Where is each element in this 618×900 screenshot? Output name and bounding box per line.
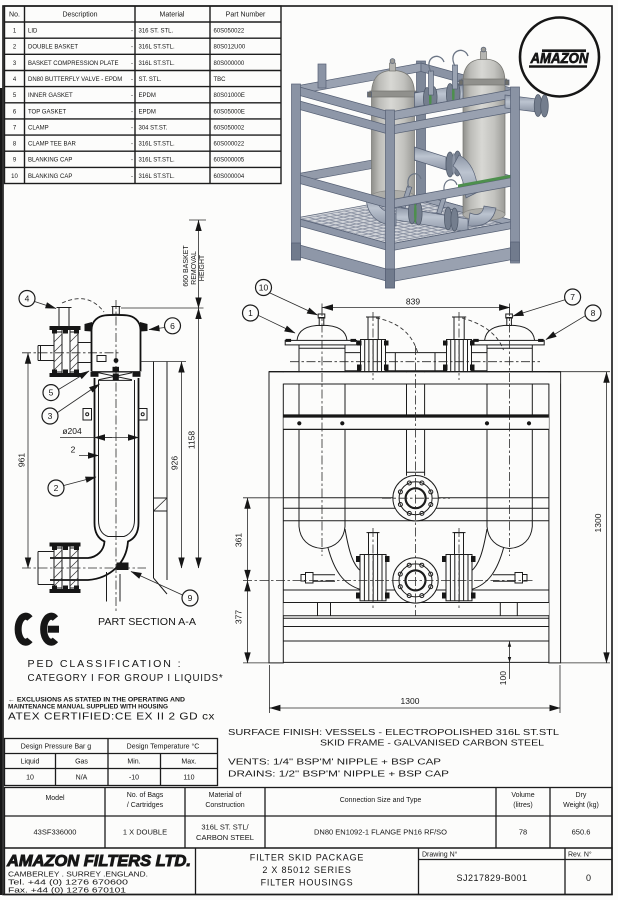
svg-text:2 X 85012 SERIES: 2 X 85012 SERIES: [262, 865, 351, 875]
svg-text:CLAMP: CLAMP: [28, 125, 49, 131]
svg-text:60S050002: 60S050002: [214, 125, 245, 131]
svg-text:Design Temperature °C: Design Temperature °C: [127, 743, 200, 751]
svg-text:650.6: 650.6: [572, 828, 591, 837]
svg-text:BLANKING CAP: BLANKING CAP: [28, 158, 72, 164]
svg-text:660 BASKET: 660 BASKET: [183, 245, 190, 287]
svg-text:Model: Model: [45, 795, 65, 802]
svg-text:BASKET COMPRESSION PLATE: BASKET COMPRESSION PLATE: [28, 61, 118, 67]
svg-text:78: 78: [519, 828, 527, 837]
svg-text:Liquid: Liquid: [21, 759, 40, 766]
svg-text:Material of: Material of: [209, 792, 242, 799]
svg-text:Drawing N°: Drawing N°: [422, 851, 458, 859]
svg-text:AMAZON FILTERS LTD.: AMAZON FILTERS LTD.: [6, 853, 191, 870]
svg-text:4: 4: [25, 294, 30, 304]
svg-text:2: 2: [71, 445, 76, 455]
svg-text:-: -: [131, 93, 133, 99]
svg-text:-: -: [131, 61, 133, 67]
svg-text:316L ST.STL.: 316L ST.STL.: [139, 61, 175, 67]
svg-text:1: 1: [248, 308, 253, 318]
svg-text:80S01000E: 80S01000E: [214, 93, 245, 99]
svg-text:AMAZON: AMAZON: [530, 51, 589, 67]
svg-text:7: 7: [570, 292, 575, 302]
svg-text:EPDM: EPDM: [139, 109, 156, 115]
svg-text:LID: LID: [28, 29, 38, 35]
svg-text:TOP GASKET: TOP GASKET: [28, 109, 66, 115]
svg-text:316L ST.STL.: 316L ST.STL.: [139, 174, 175, 180]
svg-text:60S05000E: 60S05000E: [214, 109, 245, 115]
svg-text:Description: Description: [62, 12, 97, 19]
svg-text:SJ217829-B001: SJ217829-B001: [456, 873, 527, 883]
svg-text:-: -: [131, 158, 133, 164]
svg-text:N/A: N/A: [76, 775, 88, 782]
svg-text:316 ST. STL.: 316 ST. STL.: [139, 29, 174, 35]
svg-text:361: 361: [234, 533, 244, 547]
svg-text:/ Cartridges: / Cartridges: [127, 802, 164, 809]
svg-text:1300: 1300: [593, 513, 603, 532]
svg-text:CLAMP TEE BAR: CLAMP TEE BAR: [28, 142, 76, 148]
svg-text:377: 377: [234, 610, 244, 624]
svg-text:5: 5: [49, 388, 54, 398]
svg-text:-: -: [131, 125, 133, 131]
svg-text:-10: -10: [129, 775, 139, 782]
svg-text:CAMBERLEY . SURREY .ENGLAND.: CAMBERLEY . SURREY .ENGLAND.: [8, 872, 148, 879]
svg-text:FILTER SKID PACKAGE: FILTER SKID PACKAGE: [250, 853, 364, 863]
svg-text:1158: 1158: [187, 431, 197, 450]
svg-text:100: 100: [498, 671, 508, 685]
svg-text:← EXCLUSIONS AS STATED IN THE: ← EXCLUSIONS AS STATED IN THE OPERATING …: [8, 698, 186, 704]
svg-text:TBC: TBC: [214, 77, 227, 83]
svg-text:Dry: Dry: [576, 792, 587, 799]
svg-text:60S000005: 60S000005: [214, 158, 245, 164]
svg-text:DN80 BUTTERFLY VALVE - EPDM: DN80 BUTTERFLY VALVE - EPDM: [28, 77, 122, 83]
svg-text:Design Pressure Bar g: Design Pressure Bar g: [21, 744, 92, 751]
svg-text:VENTS: 1/4" BSP'M' NIPPLE + BS: VENTS: 1/4" BSP'M' NIPPLE + BSP CAP: [228, 758, 441, 767]
svg-text:Max.: Max.: [181, 759, 196, 766]
svg-text:6: 6: [170, 321, 175, 331]
svg-text:10: 10: [259, 283, 269, 293]
svg-text:MAINTENANCE MANUAL SUPPLIED WI: MAINTENANCE MANUAL SUPPLIED WITH HOUSING: [8, 705, 168, 711]
svg-text:SURFACE FINISH: VESSELS - ELEC: SURFACE FINISH: VESSELS - ELECTROPOLISHE…: [228, 728, 560, 737]
svg-text:PART SECTION A-A: PART SECTION A-A: [98, 617, 196, 628]
svg-text:1 X DOUBLE: 1 X DOUBLE: [123, 828, 167, 837]
svg-text:Volume: Volume: [511, 792, 534, 799]
svg-text:DN80 EN1092-1 FLANGE PN16 RF/S: DN80 EN1092-1 FLANGE PN16 RF/SO: [314, 828, 447, 837]
svg-text:316L ST.STL.: 316L ST.STL.: [139, 142, 175, 148]
svg-text:3: 3: [48, 411, 53, 421]
svg-text:10: 10: [26, 775, 34, 782]
svg-text:80S012U00: 80S012U00: [214, 45, 246, 51]
svg-text:316L ST.STL.: 316L ST.STL.: [139, 45, 175, 51]
svg-text:ATEX CERTIFIED:CE EX II 2 GD c: ATEX CERTIFIED:CE EX II 2 GD cx: [8, 712, 215, 723]
svg-text:316L ST.STL.: 316L ST.STL.: [139, 158, 175, 164]
svg-text:ST. STL.: ST. STL.: [139, 77, 162, 83]
svg-text:926: 926: [170, 456, 180, 470]
svg-text:304 ST.ST.: 304 ST.ST.: [139, 125, 168, 131]
svg-text:2: 2: [54, 483, 59, 493]
svg-text:8: 8: [591, 308, 596, 318]
svg-text:60S050022: 60S050022: [214, 29, 245, 35]
svg-text:DRAINS: 1/2" BSP'M' NIPPLE +: DRAINS: 1/2" BSP'M' NIPPLE + BSP CAP: [228, 770, 449, 779]
svg-text:-: -: [131, 29, 133, 35]
svg-text:ø204: ø204: [62, 426, 82, 436]
svg-text:SKID FRAME - GALVANISED CARBON: SKID FRAME - GALVANISED CARBON STEEL: [320, 739, 545, 748]
svg-text:-: -: [131, 142, 133, 148]
svg-text:PED CLASSIFICATION :: PED CLASSIFICATION :: [28, 659, 183, 670]
svg-text:Fax. +44 (0) 1276 670101: Fax. +44 (0) 1276 670101: [8, 888, 126, 895]
svg-text:80S000000: 80S000000: [214, 61, 245, 67]
svg-text:Rev. N°: Rev. N°: [568, 851, 592, 859]
svg-text:DOUBLE BASKET: DOUBLE BASKET: [28, 45, 78, 51]
svg-text:HEIGHT: HEIGHT: [199, 254, 206, 281]
svg-text:Part Number: Part Number: [226, 12, 266, 19]
svg-text:FILTER HOUSINGS: FILTER HOUSINGS: [261, 878, 354, 888]
svg-text:1300: 1300: [401, 696, 420, 706]
svg-text:CARBON STEEL: CARBON STEEL: [196, 833, 254, 842]
svg-text:0: 0: [586, 873, 591, 883]
svg-text:43SF336000: 43SF336000: [34, 828, 77, 837]
svg-text:10: 10: [11, 174, 18, 180]
svg-text:BLANKING CAP: BLANKING CAP: [28, 174, 72, 180]
svg-text:839: 839: [406, 297, 420, 307]
svg-text:Material: Material: [160, 12, 185, 19]
svg-text:60S000004: 60S000004: [214, 174, 245, 180]
svg-text:EPDM: EPDM: [139, 93, 156, 99]
svg-text:9: 9: [188, 593, 193, 603]
svg-text:INNER GASKET: INNER GASKET: [28, 93, 73, 99]
svg-text:CATEGORY I FOR GROUP I LIQUIDS: CATEGORY I FOR GROUP I LIQUIDS*: [28, 673, 224, 684]
svg-text:316L ST. STL/: 316L ST. STL/: [201, 823, 249, 832]
svg-text:110: 110: [183, 775, 194, 782]
svg-text:Construction: Construction: [205, 802, 244, 809]
svg-text:-: -: [131, 174, 133, 180]
svg-text:Gas: Gas: [75, 759, 88, 766]
svg-text:Connection Size and Type: Connection Size and Type: [340, 797, 422, 804]
svg-text:(litres): (litres): [513, 802, 532, 809]
svg-text:Weight (kg): Weight (kg): [563, 802, 599, 809]
svg-text:961: 961: [17, 453, 27, 467]
svg-text:No. of Bags: No. of Bags: [127, 792, 164, 799]
svg-text:REMOVAL: REMOVAL: [191, 251, 198, 285]
svg-text:No.: No.: [9, 12, 20, 19]
svg-text:-: -: [131, 109, 133, 115]
svg-text:Tel. +44 (0) 1276 670600: Tel. +44 (0) 1276 670600: [8, 880, 128, 887]
svg-text:Min.: Min.: [127, 759, 140, 766]
svg-text:60S000022: 60S000022: [214, 142, 245, 148]
svg-text:-: -: [131, 77, 133, 83]
svg-text:-: -: [131, 45, 133, 51]
